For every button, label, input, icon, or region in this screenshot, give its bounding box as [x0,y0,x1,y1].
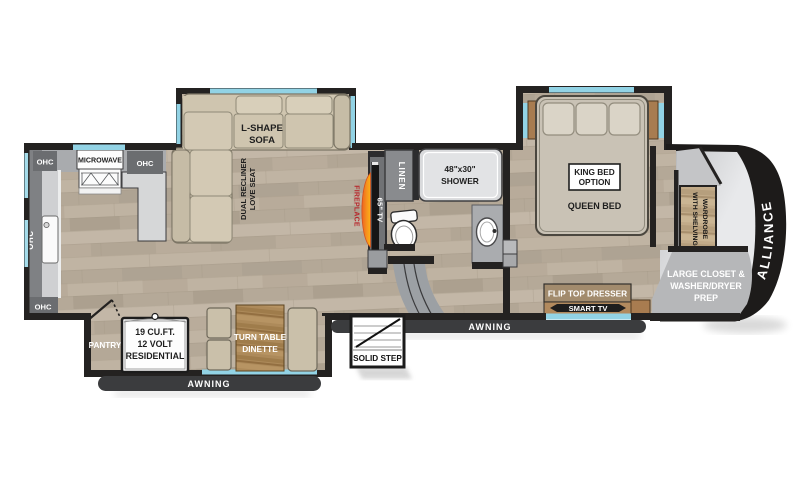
svg-text:WITH SHELVING: WITH SHELVING [691,192,698,246]
svg-text:LINEN: LINEN [397,162,406,191]
svg-text:12 VOLT: 12 VOLT [137,339,173,349]
svg-text:SMART TV: SMART TV [569,304,609,313]
svg-text:OHC: OHC [37,158,54,167]
svg-text:DUAL RECLINER: DUAL RECLINER [239,158,248,220]
svg-text:19 CU.FT.: 19 CU.FT. [135,327,175,337]
svg-text:PREP: PREP [694,293,718,303]
svg-text:AWNING: AWNING [188,379,231,389]
svg-text:65" TV: 65" TV [376,198,385,223]
svg-text:OHC: OHC [35,303,52,312]
svg-text:RESIDENTIAL: RESIDENTIAL [126,351,185,361]
svg-text:TURN TABLE: TURN TABLE [234,332,287,342]
svg-text:48"x30": 48"x30" [444,164,475,174]
svg-text:LOVE SEAT: LOVE SEAT [248,167,257,210]
svg-text:WARDROBE: WARDROBE [701,199,708,240]
svg-text:SHOWER: SHOWER [441,176,479,186]
svg-text:SOFA: SOFA [249,135,275,146]
svg-text:FLIP TOP DRESSER: FLIP TOP DRESSER [548,289,627,299]
svg-text:OHC: OHC [137,159,154,168]
svg-text:KING BED: KING BED [574,167,615,177]
svg-text:SOLID STEP: SOLID STEP [353,354,402,363]
svg-text:AWNING: AWNING [469,322,512,332]
svg-text:QUEEN BED: QUEEN BED [568,201,622,211]
svg-text:MICROWAVE: MICROWAVE [78,157,122,165]
svg-text:LARGE CLOSET &: LARGE CLOSET & [667,269,745,279]
svg-text:PANTRY: PANTRY [89,341,122,350]
svg-text:FIREPLACE: FIREPLACE [353,185,360,227]
svg-text:WASHER/DRYER: WASHER/DRYER [670,281,742,291]
svg-text:OPTION: OPTION [579,177,611,187]
svg-text:DINETTE: DINETTE [242,344,278,354]
svg-text:L-SHAPE: L-SHAPE [241,123,283,134]
